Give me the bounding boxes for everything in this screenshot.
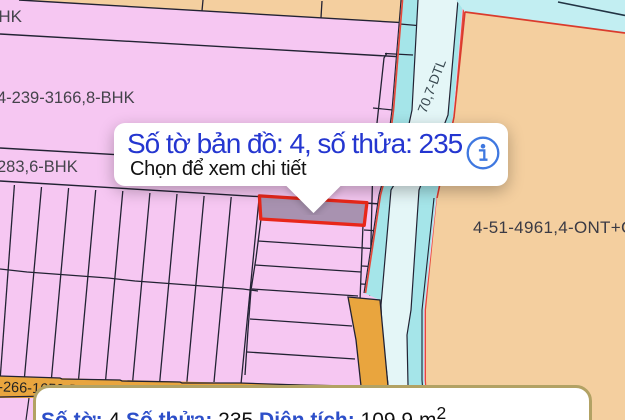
svg-text:BHK: BHK (0, 7, 23, 26)
svg-text:283,6-BHK: 283,6-BHK (0, 158, 78, 176)
svg-text:4-51-4961,4-ONT+C: 4-51-4961,4-ONT+C (473, 218, 625, 237)
svg-text:4-239-3166,8-BHK: 4-239-3166,8-BHK (0, 89, 135, 107)
